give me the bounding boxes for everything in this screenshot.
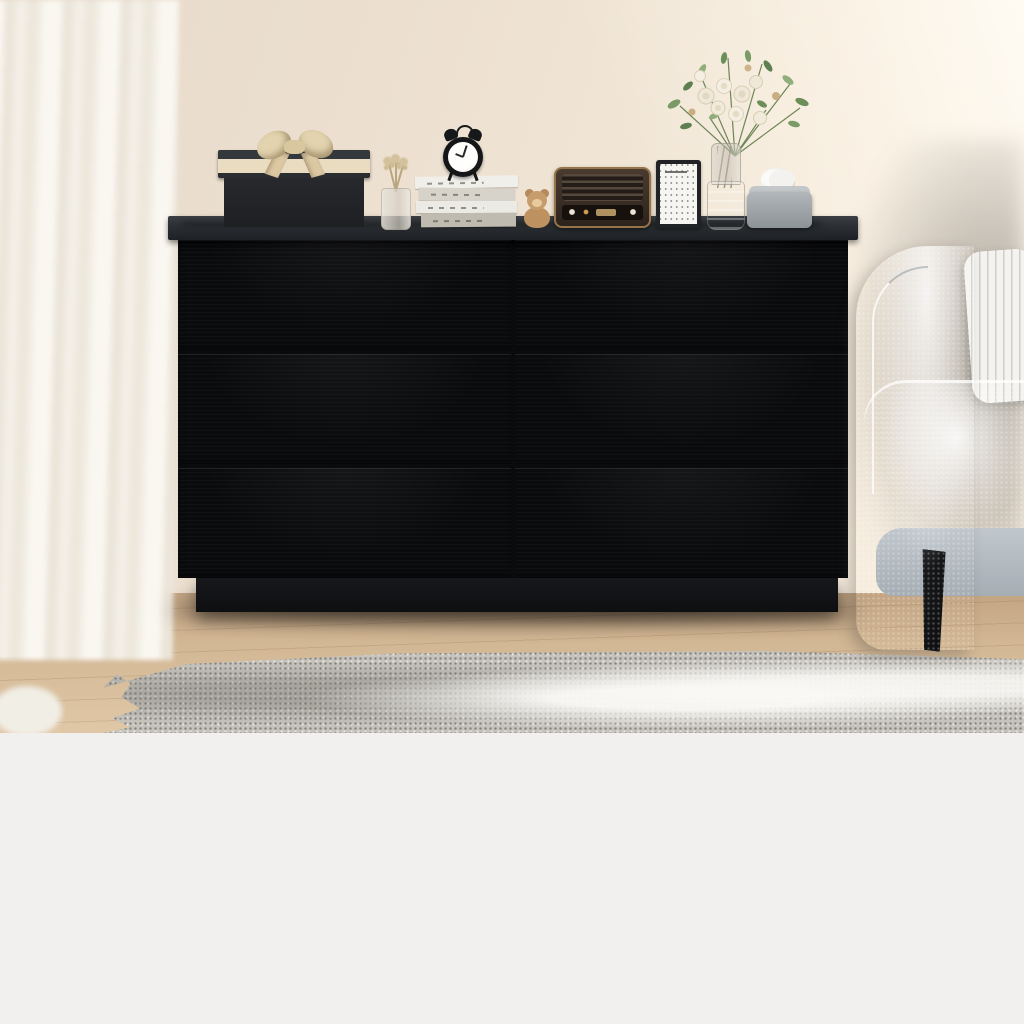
gift-box — [218, 131, 370, 227]
vase-neck — [711, 143, 741, 185]
vase-body — [707, 181, 745, 230]
gift-box-lid — [218, 150, 370, 178]
teddy-bear — [520, 189, 554, 228]
info-section: Handle Protrudes Easy to bump/ unsightly… — [0, 733, 1024, 1024]
sofa-armrest — [856, 246, 974, 650]
rug — [103, 651, 1024, 733]
drawer — [178, 354, 511, 464]
desk-calendar — [656, 160, 701, 228]
drawer — [178, 240, 511, 350]
dresser-plinth — [196, 578, 838, 612]
alarm-clock — [441, 125, 485, 187]
tissue-box-body — [747, 192, 812, 228]
white-roses — [689, 65, 781, 125]
radio-speaker-grille — [562, 174, 643, 201]
drawer — [515, 240, 848, 350]
vase-glass — [381, 188, 411, 230]
clock-face — [448, 142, 478, 172]
drawer — [178, 468, 511, 578]
room-photo — [0, 0, 1024, 733]
gift-box-body — [224, 178, 364, 227]
book — [421, 213, 516, 228]
teddy-body — [524, 207, 550, 228]
ribbon-knot — [284, 140, 305, 154]
curtain-hem — [0, 686, 62, 733]
radio-dial — [596, 209, 616, 216]
book — [416, 201, 517, 213]
tissue-box — [747, 168, 812, 228]
clock-body — [443, 137, 483, 177]
product-image: Handle Protrudes Easy to bump/ unsightly… — [0, 0, 1024, 1024]
dresser — [178, 240, 848, 578]
vintage-radio — [554, 167, 651, 228]
curtain — [0, 0, 179, 660]
flower-vase — [705, 143, 745, 228]
sofa — [850, 238, 1024, 663]
flower-bouquet — [650, 46, 820, 158]
drawer — [515, 354, 848, 464]
small-vase — [379, 158, 411, 228]
book — [419, 187, 515, 201]
drawer — [515, 468, 848, 578]
teddy-muzzle — [532, 199, 542, 207]
calendar-face — [660, 164, 697, 224]
